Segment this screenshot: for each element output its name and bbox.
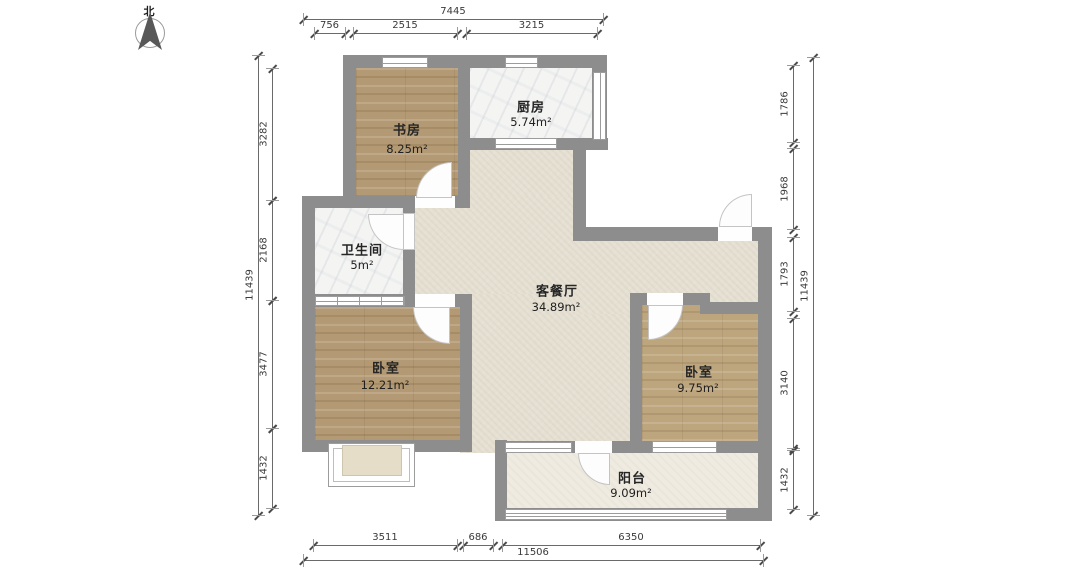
- wall-study-left: [343, 55, 356, 208]
- wall-bedroom-left-right: [460, 294, 472, 452]
- door-opening-entrance: [718, 227, 752, 241]
- floor-plan: 北: [0, 0, 1074, 576]
- window-balcony-bottom: [505, 509, 727, 520]
- dim-top-segments-2: 3215: [519, 20, 544, 31]
- room-balcony-name: 阳台: [618, 468, 646, 487]
- dim-left-total: 11439: [245, 269, 256, 301]
- room-bedroom-left-area: 12.21m²: [361, 378, 410, 392]
- window-balcony-top: [505, 442, 572, 453]
- wall-post: [700, 293, 710, 314]
- dim-top-total: 7445: [440, 6, 465, 17]
- room-bedroom-right-name: 卧室: [685, 362, 713, 381]
- room-kitchen-area: 5.74m²: [510, 115, 551, 129]
- room-bathroom-area: 5m²: [350, 258, 373, 272]
- wall-living-right: [573, 148, 586, 232]
- wall-left-outer: [302, 196, 315, 452]
- dim-bottom-total: 11506: [517, 547, 549, 558]
- dim-top-segments-0: 756: [320, 20, 339, 31]
- compass: 北: [128, 2, 172, 66]
- dim-left-segments-3: 1432: [259, 455, 270, 480]
- room-living-floor-c: [460, 294, 642, 453]
- dim-right-segments-1: 1968: [780, 176, 791, 201]
- wall-step: [710, 302, 758, 314]
- window-kitchen-top: [505, 57, 538, 68]
- dim-left-segments-2: 3477: [259, 351, 270, 376]
- wall-bedroom-right-left: [630, 294, 642, 453]
- window-study-top: [382, 57, 428, 68]
- dim-left-segments-1: 2168: [259, 237, 270, 262]
- window-bedroom-right-bottom: [652, 441, 717, 453]
- room-balcony-area: 9.09m²: [610, 486, 651, 500]
- door-fan-entrance: [719, 194, 752, 227]
- room-bathroom-name: 卫生间: [341, 240, 383, 259]
- door-opening-bedroom-left: [415, 294, 455, 307]
- bay-window: [328, 443, 415, 487]
- room-kitchen-name: 厨房: [517, 97, 545, 116]
- dim-right-segments-3: 3140: [780, 370, 791, 395]
- dim-right-total: 11439: [800, 270, 811, 302]
- room-living-area: 34.89m²: [532, 300, 581, 314]
- wall-right-outer: [758, 227, 772, 521]
- dim-bottom-segments-0: 3511: [372, 532, 397, 543]
- room-living-name: 客餐厅: [536, 281, 578, 300]
- dim-right-segments-2: 1793: [780, 261, 791, 286]
- dim-bottom-segments-1: 686: [468, 532, 487, 543]
- room-bedroom-right-area: 9.75m²: [677, 381, 718, 395]
- door-opening-balcony: [575, 441, 612, 453]
- room-study-name: 书房: [393, 120, 421, 139]
- door-opening-bedroom-right: [647, 293, 683, 305]
- room-study-area: 8.25m²: [386, 142, 427, 156]
- dim-right-segments-4: 1432: [780, 467, 791, 492]
- dim-bottom-segments-2: 6350: [618, 532, 643, 543]
- window-bathroom-bedroom: [315, 296, 405, 306]
- room-bedroom-left-name: 卧室: [372, 358, 400, 377]
- dim-right-segments-0: 1786: [780, 91, 791, 116]
- dim-left-segments-0: 3282: [259, 121, 270, 146]
- bay-window-sill: [342, 445, 402, 476]
- wall-bathroom-right-b: [403, 249, 415, 296]
- door-opening-bathroom: [403, 213, 415, 250]
- door-slider-kitchen: [495, 138, 557, 149]
- window-kitchen-right: [593, 72, 606, 140]
- dim-top-segments-1: 2515: [392, 20, 417, 31]
